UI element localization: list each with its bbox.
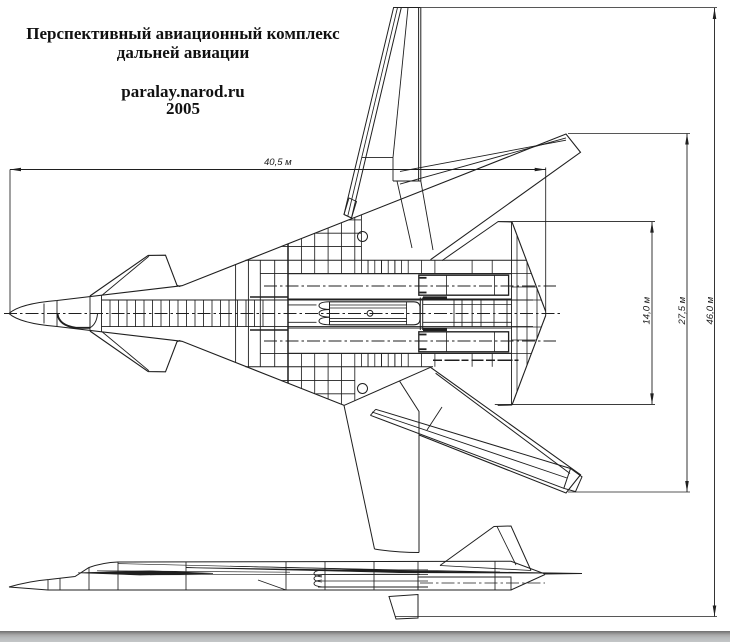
svg-text:27,5 м: 27,5 м	[677, 296, 688, 325]
svg-text:14,0 м: 14,0 м	[642, 296, 653, 324]
svg-text:46,0 м: 46,0 м	[705, 296, 716, 324]
svg-text:40,5 м: 40,5 м	[264, 157, 292, 168]
